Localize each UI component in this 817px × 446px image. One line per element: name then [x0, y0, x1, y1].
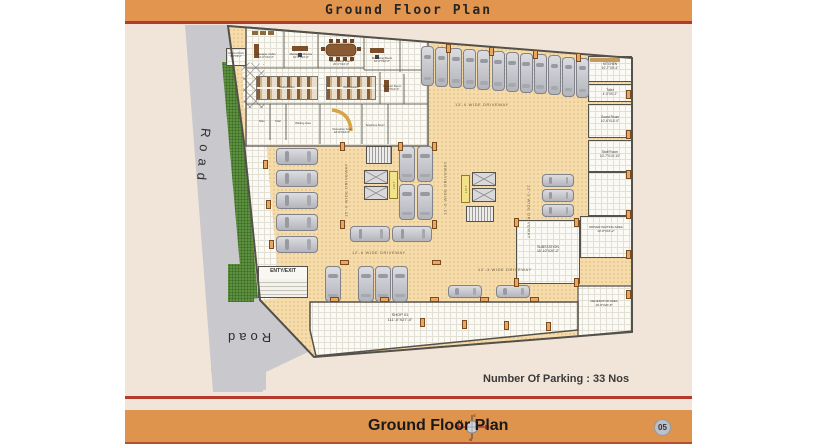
staircase-1 [366, 146, 392, 164]
car-icon [276, 148, 318, 165]
lift-cabin [472, 188, 496, 202]
page-number-badge: 05 [654, 419, 671, 436]
lift-shaft-2: LIFT [461, 175, 470, 203]
column-marker [446, 44, 451, 53]
room-label-kitchen: KITCHEN10'-7"X5'-4" [590, 62, 630, 70]
car-icon [399, 146, 415, 182]
room-label-workstation1: Workstation [258, 86, 316, 90]
room-label-substation: SUBSTATION15'-10"X20'-2" [522, 245, 574, 254]
column-marker [462, 320, 467, 329]
column-marker [533, 50, 538, 59]
column-marker [430, 297, 439, 302]
column-marker [269, 240, 274, 249]
road-label-bottom: Road [224, 330, 271, 345]
car-icon [449, 48, 462, 88]
driveway-label-bottom2: 12'-3 WIDE DRIVEWAY [478, 267, 532, 272]
room-label-guard: Guard Room10'-6"X10'-0" [590, 115, 630, 123]
car-icon [417, 184, 433, 220]
column-marker [514, 218, 519, 227]
column-marker [266, 200, 271, 209]
car-icon [421, 46, 434, 86]
room-driver-waiting [580, 216, 632, 258]
driveway-label-bottom: 12'-6 WIDE DRIVEWAY [352, 250, 406, 255]
room-label-waiting: Waiting Area [288, 122, 318, 125]
room-label-account: Account Room8'-0"X10'-0" [380, 85, 404, 92]
car-icon [276, 236, 318, 253]
driveway-label-top: 13'-0 WIDE DRIVEWAY [455, 102, 509, 107]
car-icon [492, 51, 505, 91]
column-marker [626, 90, 631, 99]
car-icon [534, 54, 547, 94]
room-label-staff: Staff Room10'-7"X10'-10" [590, 150, 630, 158]
page-title: Ground Floor Plan [125, 3, 692, 18]
driveway-label-mid: 12'-0 WIDE DRIVEWAY [443, 161, 448, 215]
column-marker [398, 142, 403, 151]
lift-cabin [364, 186, 388, 200]
column-marker [432, 220, 437, 229]
column-marker [530, 297, 539, 302]
car-icon [435, 47, 448, 87]
car-icon [542, 189, 574, 202]
car-icon [399, 184, 415, 220]
driveway-label-left: 15'-0 WIDE DRIVEWAY [344, 163, 349, 217]
room-label-toilet-right: Toilet4'-0"X5'-2" [590, 88, 630, 96]
column-marker [432, 260, 441, 265]
car-icon [350, 226, 390, 242]
column-marker [626, 290, 631, 299]
column-marker [626, 210, 631, 219]
car-icon [463, 49, 476, 89]
footer-title: Ground Floor Plan [368, 417, 508, 435]
column-marker [330, 297, 339, 302]
car-icon [506, 52, 519, 92]
room-label-marketing: Marketing Room10'-0"X10'-0" [366, 57, 398, 64]
column-marker [514, 278, 519, 287]
lift-label: LIFT [392, 181, 396, 189]
car-icon [576, 58, 589, 98]
column-marker [340, 260, 349, 265]
car-icon [358, 266, 374, 302]
room-label-generator: GENERATOR AREA10'-8"X20'-8" [582, 300, 626, 308]
room-label-md: Managing Director10'-0"X10'-0" [286, 53, 316, 60]
lift-label: LIFT [464, 185, 468, 193]
room-label-cabin: Manager Cabin10'-0"X10'-0" [250, 53, 282, 60]
driveway-label-right: 12'-3 WIDE DRIVEWAY [527, 185, 532, 239]
column-marker [626, 130, 631, 139]
room-label-driver: DRIVER WAITING AREA10'-8"X16'-2" [584, 226, 628, 234]
column-marker [380, 297, 389, 302]
column-marker [432, 142, 437, 151]
column-marker [420, 318, 425, 327]
car-icon [542, 204, 574, 217]
car-icon [417, 146, 433, 182]
column-marker [576, 53, 581, 62]
car-icon [520, 53, 533, 93]
column-marker [574, 218, 579, 227]
column-marker [340, 142, 345, 151]
car-icon [276, 170, 318, 187]
lift-cabin [472, 172, 496, 186]
room-label-reception: Reception Area16'-0"X10'-6" [324, 128, 360, 135]
column-marker [546, 322, 551, 331]
car-icon [542, 174, 574, 187]
hedge-patch [228, 264, 254, 302]
column-marker [574, 278, 579, 287]
room-label-telephone: Telephone Room [363, 124, 387, 127]
brochure-page: LIFT LIFT Camera Room8'-0"X9'-0" M [0, 0, 817, 446]
car-icon [548, 55, 561, 95]
header-divider [125, 21, 692, 24]
staircase-2 [466, 206, 494, 222]
car-icon [448, 285, 482, 298]
column-marker [626, 250, 631, 259]
car-icon [496, 285, 530, 298]
car-icon [392, 266, 408, 302]
column-marker [480, 297, 489, 302]
column-marker [263, 160, 268, 169]
car-icon [392, 226, 432, 242]
room-label-toilet2: Toilet [271, 120, 285, 123]
footer-divider [125, 396, 692, 399]
entry-exit-label: ENTY/EXIT [260, 268, 306, 274]
column-marker [504, 321, 509, 330]
room-label-camera: Camera Room8'-0"X9'-0" [226, 52, 246, 58]
car-icon [276, 192, 318, 209]
header-bar: Ground Floor Plan [125, 0, 692, 21]
room-label-toilet1: Toilet [254, 120, 269, 123]
car-icon [276, 214, 318, 231]
room-label-conference: Conference Room20'-0"X10'-0" [320, 60, 362, 67]
column-marker [489, 47, 494, 56]
lift-shaft-1: LIFT [389, 171, 398, 199]
column-marker [626, 170, 631, 179]
parking-count-note: Number Of Parking : 33 Nos [483, 373, 663, 385]
room-label-workstation2: Workstation [328, 86, 374, 90]
car-icon [477, 50, 490, 90]
car-icon [562, 57, 575, 97]
column-marker [340, 220, 345, 229]
lift-cabin [364, 170, 388, 184]
